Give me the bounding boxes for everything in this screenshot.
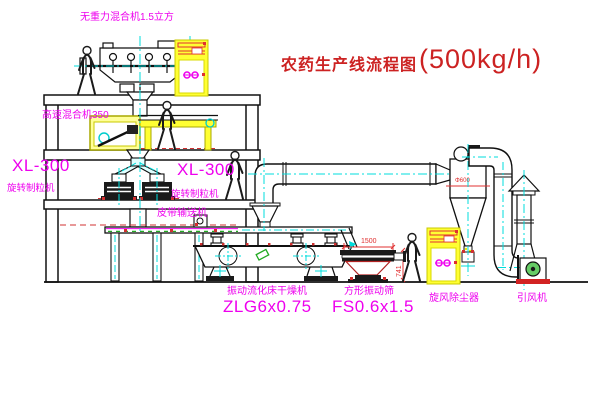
fan-label: 引风机 xyxy=(517,294,547,304)
induced-draft-fan-drawing xyxy=(516,255,550,284)
screen-model-label: FS0.6x1.5 xyxy=(332,298,414,315)
dryer-model-label: ZLG6x0.75 xyxy=(223,298,312,315)
pesticide-line-flow-diagram: 农药生产线流程图 (500kg/h) 无重力混合机1.5立方 高速混合机350 … xyxy=(0,0,600,403)
exhaust-duct xyxy=(248,158,468,231)
high-speed-mixer-label: 高速混合机350 xyxy=(42,111,109,121)
screen-length-dimension: 1500 xyxy=(361,238,377,245)
fluid-bed-dryer-drawing xyxy=(193,230,354,281)
cyclone-label: 旋风除尘器 xyxy=(429,294,479,304)
granulator-left-name-label: 旋转制粒机 xyxy=(7,184,55,194)
granulator-left-model-label: XL-300 xyxy=(12,157,70,174)
title-capacity: (500kg/h) xyxy=(419,44,542,75)
cyclone-diameter-dimension: Φ600 xyxy=(455,178,470,184)
discharge-chute xyxy=(130,209,146,227)
gravity-mixer-label: 无重力混合机1.5立方 xyxy=(80,13,174,23)
control-cabinet-right xyxy=(427,228,460,284)
dryer-name-label: 振动流化床干燥机 xyxy=(227,287,307,297)
granulator-right-model-label: XL-300 xyxy=(177,161,235,178)
screen-name-label: 方形振动筛 xyxy=(344,287,394,297)
title-text: 农药生产线流程图 xyxy=(281,45,417,75)
granulator-right-name-label: 旋转制粒机 xyxy=(171,190,219,200)
granulator-left xyxy=(101,168,137,205)
control-cabinet-top xyxy=(175,40,208,96)
belt-conveyor-label: 皮带输送机 xyxy=(157,209,207,219)
screen-height-dimension: 741 xyxy=(396,265,403,277)
granulator-right xyxy=(139,168,175,205)
diagram-title: 农药生产线流程图 (500kg/h) xyxy=(281,44,542,75)
